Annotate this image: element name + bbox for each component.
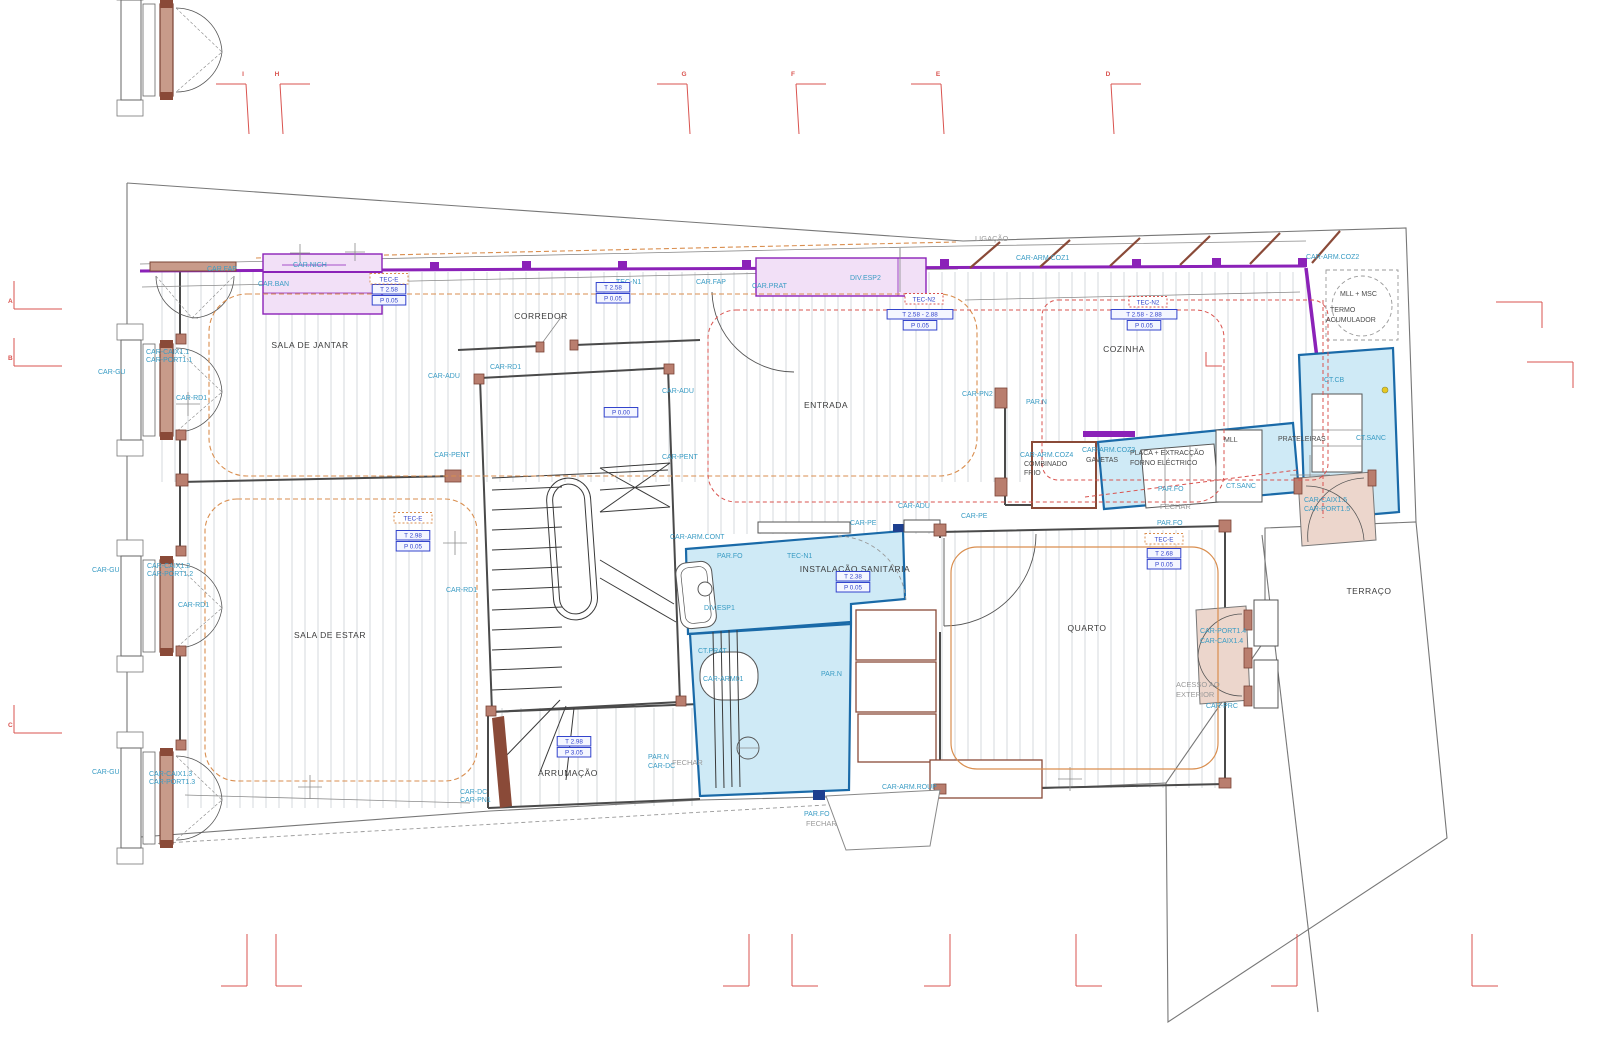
fechar-infill	[826, 790, 940, 850]
label-par-fo: PAR.FO	[1157, 520, 1183, 527]
label-car-adu: CAR-ADU	[428, 373, 460, 380]
label-car-caix1-1: CAR-CAIX1.1	[146, 349, 189, 356]
label-car-prat: CAR.PRAT	[752, 283, 788, 290]
label-car-pent: CAR-PENT	[434, 452, 471, 459]
label-par-fo: PAR.FO	[717, 553, 743, 560]
label-car-port1-5: CAR-PORT1.5	[1304, 506, 1350, 513]
label-car-rd1: CAR-RD1	[178, 602, 209, 609]
grid-mark-top	[280, 84, 310, 134]
label-liga-o: LIGAÇÃO	[975, 234, 1009, 243]
label-car-port1-4: CAR-PORT1.4	[1200, 628, 1246, 635]
room-label-sala-de-estar: SALA DE ESTAR	[294, 630, 366, 640]
value-box-text-p-0-05: P 0.05	[380, 298, 399, 305]
tec-box-text-tec-n2: TEC-N2	[1137, 300, 1160, 307]
label-car-fap: CAR.FAP	[207, 266, 237, 273]
grid-mark-bottom	[1472, 934, 1498, 986]
room-label-terra-o: TERRAÇO	[1346, 586, 1391, 596]
label-car-arm01: CAR-ARM01	[703, 676, 744, 683]
label-gavetas: GAVETAS	[1086, 457, 1118, 464]
room-label-arruma-o: ARRUMAÇÃO	[538, 768, 598, 778]
value-box-text-t-2-98: T 2.98	[565, 739, 583, 746]
label-car-pe: CAR-PE	[961, 513, 988, 520]
label-fechar: FECHAR	[672, 758, 703, 767]
value-box-text-p-0-00: P 0.00	[612, 410, 631, 417]
grid-mark-top	[1111, 84, 1141, 134]
grid-mark-bottom	[221, 934, 247, 986]
value-box-text-p-0-05: P 0.05	[604, 296, 623, 303]
value-box-text-p-0-05: P 0.05	[1155, 562, 1174, 569]
label-car-gu: CAR-GU	[92, 769, 120, 776]
label-car-pent: CAR-PENT	[662, 454, 699, 461]
floor-plan-page: IHGFEDABC SALA DE JANTARCORREDORENTRADAC…	[0, 0, 1600, 1063]
label-car-arm-coz2: CAR-ARM.COZ2	[1306, 254, 1359, 261]
value-box-text-t-2-58: T 2.58	[380, 287, 398, 294]
tec-box-text-tec-e: TEC-E	[404, 516, 423, 523]
label-car-gu: CAR-GU	[98, 369, 126, 376]
grid-mark-bottom	[924, 934, 950, 986]
label-acesso-ao: ACESSO AO	[1176, 680, 1220, 689]
label-ct-sanc: CT.SANC	[1226, 483, 1256, 490]
label-ct-cb: CT.CB	[1324, 377, 1345, 384]
value-box-text-p-0-05: P 0.05	[404, 544, 423, 551]
label-div-esp2: DIV.ESP2	[850, 275, 881, 282]
label-par-fo: PAR.FO	[804, 811, 830, 818]
label-termo: TERMO	[1330, 307, 1356, 314]
label-car-arm-cont: CAR-ARM.CONT	[670, 534, 725, 541]
value-box-text-p-0-05: P 0.05	[844, 585, 863, 592]
grid-mark-top	[796, 84, 826, 134]
grid-letter-g: G	[681, 71, 686, 78]
label-car-pe: CAR-PE	[850, 520, 877, 527]
room-label-quarto: QUARTO	[1067, 623, 1106, 633]
label-exterior: EXTERIOR	[1176, 690, 1215, 699]
water-heater	[1326, 270, 1398, 340]
label-car-nich: CAR.NICH	[293, 262, 327, 269]
label-car-arm-coz1: CAR-ARM.COZ1	[1016, 255, 1069, 262]
label-prateleiras: PRATELEIRAS	[1278, 436, 1326, 443]
grid-mark-top	[216, 84, 249, 134]
grid-mark-left	[14, 705, 62, 733]
floor-plan-drawing: IHGFEDABC SALA DE JANTARCORREDORENTRADAC…	[0, 0, 1600, 1063]
label-mll-msc: MLL + MSC	[1340, 291, 1377, 298]
label-combinado: COMBINADO	[1024, 461, 1068, 468]
label-div-esp1: DIV.ESP1	[704, 605, 735, 612]
label-car-rd1: CAR-RD1	[446, 587, 477, 594]
label-mll: MLL	[1224, 437, 1238, 444]
grid-mark-right	[1527, 362, 1573, 388]
value-box-text-t-2-98: T 2.98	[404, 533, 422, 540]
tec-box-text-tec-n2: TEC-N2	[913, 297, 936, 304]
grid-letter-e: E	[936, 71, 941, 78]
grid-mark-bottom	[1076, 934, 1102, 986]
value-box-text-t-2-58: T 2.58	[604, 285, 622, 292]
grid-mark-bottom	[1271, 934, 1297, 986]
label-car-gu: CAR-GU	[92, 567, 120, 574]
grid-letter-i: I	[242, 71, 244, 78]
value-box-text-p-0-05: P 0.05	[911, 323, 930, 330]
label-par-n: PAR.N	[1026, 399, 1047, 406]
label-car-caix1-2: CAR-CAIX1.2	[147, 563, 190, 570]
label-ct-sanc: CT.SANC	[1356, 435, 1386, 442]
grid-letter-f: F	[791, 71, 795, 78]
label-car-pn1: CAR-PN1	[460, 797, 491, 804]
label-fechar: FECHAR	[806, 819, 837, 828]
label-car-port1-3: CAR-PORT1.3	[149, 779, 195, 786]
grid-mark-bottom	[723, 934, 749, 986]
label-par-n: PAR.N	[821, 671, 842, 678]
label-car-prc: CAR-PRC	[1206, 703, 1238, 710]
label-placa-extrac-o: PLACA + EXTRACÇÃO	[1130, 448, 1205, 457]
label-car-port1-2: CAR-PORT1.2	[147, 571, 193, 578]
grid-mark-left	[14, 338, 62, 366]
label-car-pn2: CAR-PN2	[962, 391, 993, 398]
room-label-corredor: CORREDOR	[514, 311, 568, 321]
grid-letter-a: A	[8, 298, 13, 305]
label-car-fap: CAR.FAP	[696, 279, 726, 286]
label-ct-prat: CT.PRAT	[698, 648, 727, 655]
label-car-adu: CAR-ADU	[898, 503, 930, 510]
label-fechar: FECHAR	[1160, 502, 1191, 511]
label-car-rd1: CAR-RD1	[176, 395, 207, 402]
label-car-arm-roup: CAR-ARM.ROUP	[882, 784, 937, 791]
label-forno-el-ctrico: FORNO ELÉCTRICO	[1130, 458, 1198, 467]
label-car-arm-coz3: CAR-ARM.COZ3	[1082, 447, 1135, 454]
label-car-rd1: CAR-RD1	[490, 364, 521, 371]
grid-mark-bottom	[276, 934, 302, 986]
grid-letter-b: B	[8, 355, 13, 362]
tec-box-text-tec-e: TEC-E	[1155, 537, 1174, 544]
kitchen-skylight-mullions	[970, 231, 1340, 268]
tec-box-text-tec-e: TEC-E	[380, 277, 399, 284]
grid-mark-top	[657, 84, 690, 134]
value-box-text-t-2-58-2-88: T 2.58 - 2.88	[1126, 312, 1162, 319]
label-car-port1-1: CAR-PORT1.1	[146, 357, 192, 364]
grid-letter-h: H	[275, 71, 280, 78]
grid-mark-right	[1496, 302, 1542, 328]
label-tec-n1: TEC-N1	[787, 553, 812, 560]
label-car-caix1-3: CAR-CAIX1.3	[149, 771, 192, 778]
label-par-n: PAR.N	[648, 754, 669, 761]
grid-mark-left	[14, 281, 62, 309]
label-frio: FRIO	[1024, 470, 1041, 477]
label-car-ban: CAR.BAN	[258, 281, 289, 288]
grid-letter-c: C	[8, 722, 13, 729]
room-label-entrada: ENTRADA	[804, 400, 848, 410]
grid-mark-top	[911, 84, 944, 134]
room-label-sala-de-jantar: SALA DE JANTAR	[271, 340, 348, 350]
room-label-cozinha: COZINHA	[1103, 344, 1145, 354]
grid-letter-d: D	[1106, 71, 1111, 78]
label-car-caix1-5: CAR-CAIX1.5	[1304, 497, 1347, 504]
label-car-adu: CAR-ADU	[662, 388, 694, 395]
value-box-text-p-0-05: P 0.05	[1135, 323, 1154, 330]
label-par-fo: PAR.FO	[1158, 486, 1184, 493]
label-car-arm-coz4: CAR-ARM.COZ4	[1020, 452, 1073, 459]
grid-mark-bottom	[792, 934, 818, 986]
label-acumulador: ACUMULADOR	[1326, 317, 1376, 324]
label-car-dc: CAR-DC	[460, 789, 487, 796]
value-box-text-p-3-05: P 3.05	[565, 750, 584, 757]
value-box-text-t-2-58-2-88: T 2.58 - 2.88	[902, 312, 938, 319]
value-box-text-t-2-68: T 2.68	[1155, 551, 1173, 558]
label-car-caix1-4: CAR-CAIX1.4	[1200, 638, 1243, 645]
value-box-text-t-2-38: T 2.38	[844, 574, 862, 581]
